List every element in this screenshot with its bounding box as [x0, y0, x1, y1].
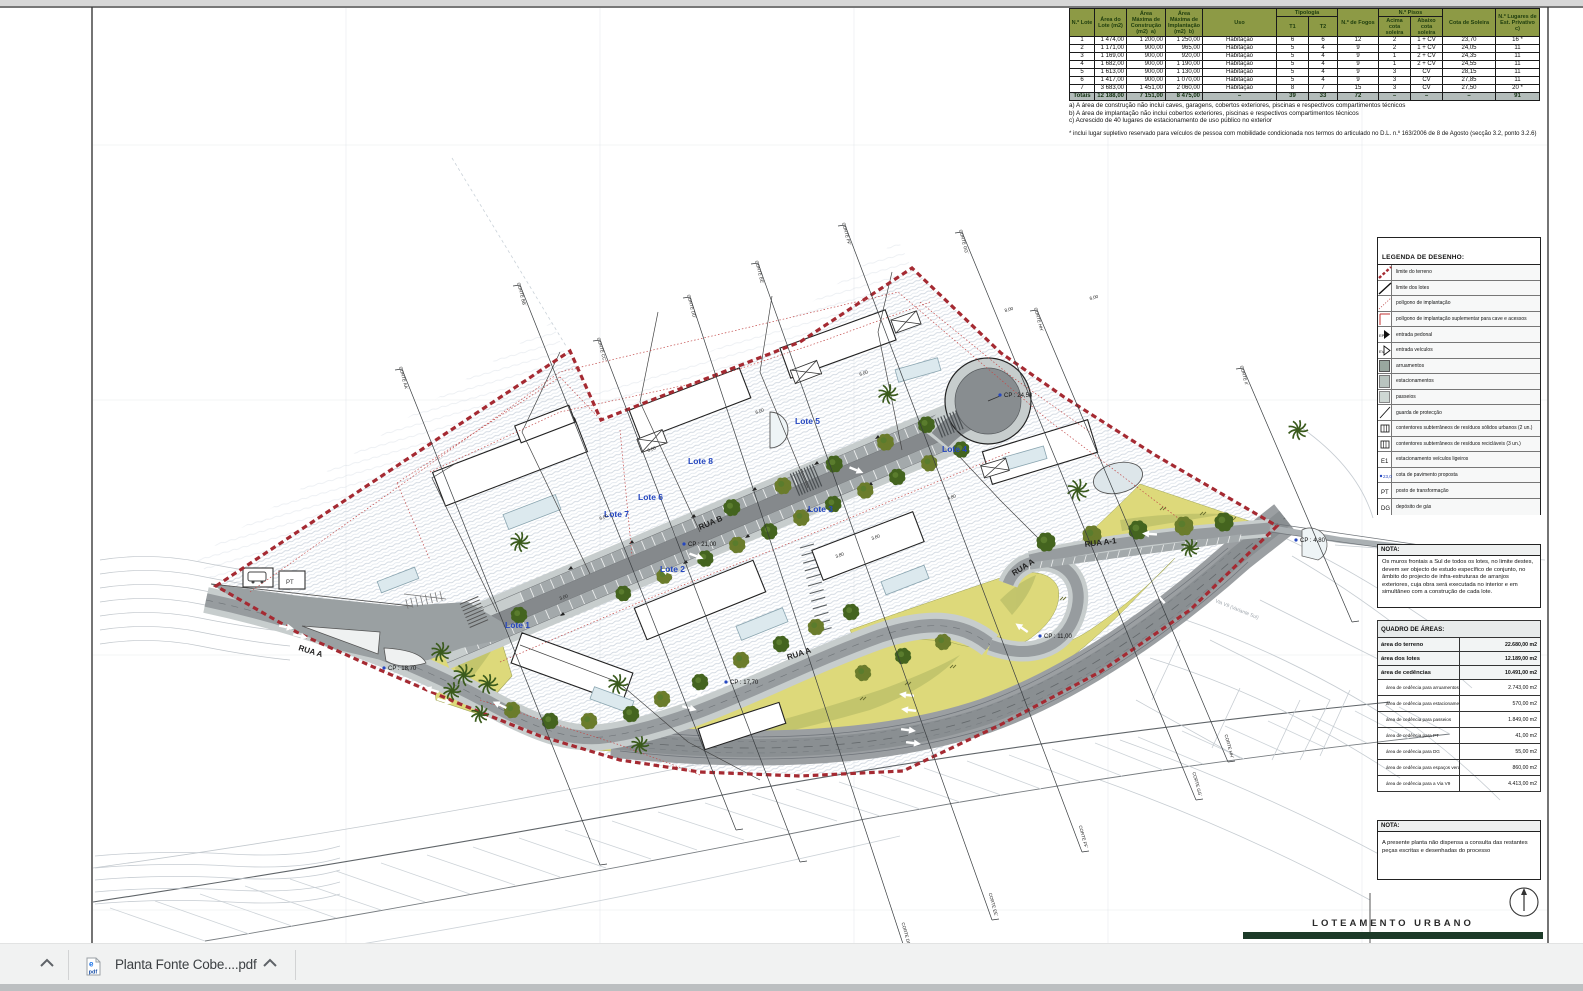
- svg-text:DG: DG: [1381, 506, 1390, 512]
- svg-text:Lote 5: Lote 5: [795, 416, 820, 426]
- svg-text:CP : 21,00: CP : 21,00: [688, 542, 717, 548]
- svg-text:e: e: [89, 960, 94, 969]
- svg-text:Lote 4: Lote 4: [942, 444, 967, 454]
- svg-text:CP : 4,80: CP : 4,80: [1300, 538, 1326, 544]
- svg-text:EP: EP: [1379, 333, 1385, 338]
- svg-text:Lote 8: Lote 8: [688, 456, 713, 466]
- svg-text:CP : 18,70: CP : 18,70: [388, 666, 417, 672]
- svg-text:PT: PT: [1381, 490, 1389, 496]
- svg-text:pdf: pdf: [89, 970, 98, 976]
- svg-text:E1: E1: [1381, 459, 1389, 465]
- svg-text:23,00: 23,00: [1383, 474, 1392, 479]
- svg-text:CP : 24,50: CP : 24,50: [1004, 393, 1033, 399]
- svg-text:Lote 6: Lote 6: [638, 492, 663, 502]
- svg-text:PT: PT: [286, 580, 294, 586]
- svg-text:CP : 11,00: CP : 11,00: [1044, 634, 1072, 640]
- svg-text:Lote 2: Lote 2: [660, 564, 685, 574]
- svg-text:Lote 1: Lote 1: [505, 620, 530, 630]
- svg-text:CP : 17,70: CP : 17,70: [730, 680, 759, 686]
- svg-text:Lote 3: Lote 3: [808, 504, 833, 514]
